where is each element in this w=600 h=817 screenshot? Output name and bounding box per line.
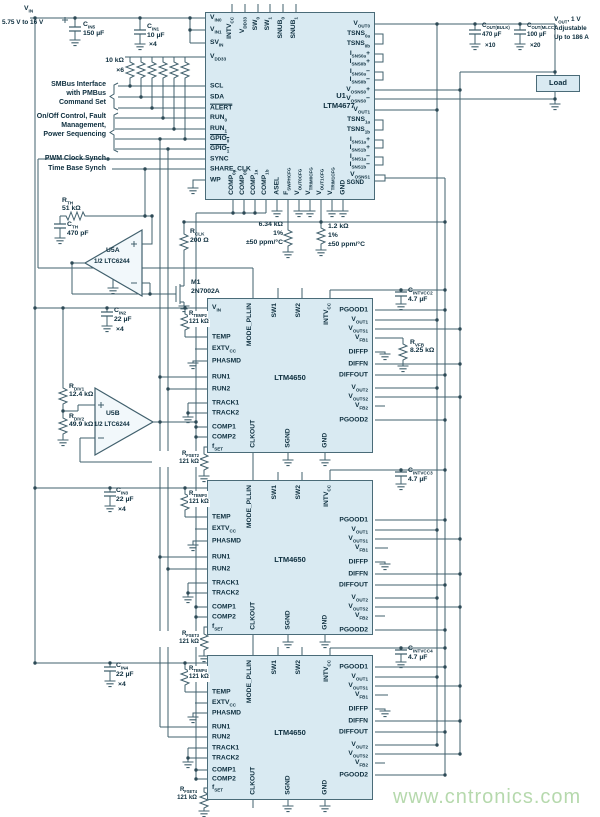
pin-label: RUN2 bbox=[212, 387, 230, 394]
part-number: LTM4650 bbox=[208, 373, 372, 382]
rclk-value: 200 Ω bbox=[190, 237, 209, 245]
control-annotation: Power Sequencing bbox=[0, 131, 106, 138]
pin-label: WP bbox=[210, 178, 221, 185]
pin-label: EXTVCC bbox=[212, 346, 236, 354]
pin-label: CLKOUT bbox=[250, 767, 257, 795]
pin-label: VOUTS2 bbox=[348, 751, 368, 759]
cth-value: 470 pF bbox=[67, 230, 89, 238]
cin5-value: 150 µF bbox=[83, 30, 104, 38]
pin-label: GND bbox=[322, 780, 329, 795]
control-annotation: On/Off Control, Fault bbox=[0, 113, 106, 120]
pin-label: VOUTS2 bbox=[348, 394, 368, 402]
pin-label: ISNS1b+ bbox=[350, 145, 370, 153]
pin-label: VFB2 bbox=[355, 760, 368, 768]
cin3-value: 22 µF bbox=[116, 496, 134, 504]
pin-label: VFB2 bbox=[355, 613, 368, 621]
pin-label: ISNS0b− bbox=[350, 77, 370, 85]
rpull-mult: ×6 bbox=[84, 67, 124, 75]
cin2-value: 22 µF bbox=[114, 316, 132, 324]
pin-label: TRACK1 bbox=[212, 401, 239, 408]
rtemp4-value: 121 kΩ bbox=[188, 674, 210, 682]
pin-label: COMP1 bbox=[212, 605, 236, 612]
cin2-mult: ×4 bbox=[116, 326, 124, 334]
pin-label: TSNS0b bbox=[347, 41, 370, 49]
pin-label: SYNC bbox=[210, 157, 229, 164]
pin-label: SNUB1 bbox=[291, 17, 299, 38]
pin-label: RUN2 bbox=[212, 567, 230, 574]
pin-label: VTRIM1CFG bbox=[328, 167, 336, 195]
rdiv2-value: 49.9 kΩ bbox=[69, 421, 93, 429]
rth-value: 51 kΩ bbox=[62, 205, 81, 213]
pin-label: TEMP bbox=[212, 515, 231, 522]
cin3-mult: ×4 bbox=[118, 506, 126, 514]
pin-label: PHASMD bbox=[212, 539, 241, 546]
u5a-ref: U5A bbox=[106, 247, 120, 255]
pin-label: SW0 bbox=[253, 17, 261, 30]
vin-range: 5.75 V to 16 V bbox=[2, 19, 43, 27]
pwm-annotation: PWM Clock Synch bbox=[0, 155, 106, 162]
pin-label: VDD33 bbox=[240, 17, 248, 33]
pin-label: SGND bbox=[285, 776, 292, 795]
u5a-part: 1/2 LTC6244 bbox=[94, 258, 130, 266]
pin-label: fSET bbox=[212, 785, 223, 793]
pin-label: SW1 bbox=[272, 303, 279, 318]
pin-label: SNUB0 bbox=[278, 17, 286, 38]
cin4-value: 22 µF bbox=[116, 671, 134, 679]
pin-label: VTRIM0CFG bbox=[306, 167, 314, 195]
pin-label: SW1 bbox=[272, 660, 279, 675]
pin-label: VFB1 bbox=[355, 692, 368, 700]
pin-label: COMP1a bbox=[251, 170, 259, 195]
rfset4-value: 121 kΩ bbox=[150, 795, 198, 803]
vout-spec: Adjustable bbox=[554, 25, 587, 33]
pin-label: SW2 bbox=[296, 303, 303, 318]
pin-label: TEMP bbox=[212, 690, 231, 697]
pin-label: TEMP bbox=[212, 335, 231, 342]
pin-label: GND bbox=[340, 180, 347, 195]
coutmlcc-mult: ×20 bbox=[530, 42, 541, 50]
pin-label: VIN1 bbox=[210, 27, 222, 35]
pin-label: VDD33 bbox=[210, 54, 226, 62]
pin-label: COMP2 bbox=[212, 777, 236, 784]
pin-label: ISNS0b+ bbox=[350, 59, 370, 67]
smbus-annotation: Command Set bbox=[0, 99, 106, 106]
cin5-name: CIN5 bbox=[83, 21, 95, 30]
pin-label: VIN0 bbox=[210, 15, 222, 23]
pin-label: VOUT1CFG bbox=[317, 169, 325, 195]
rfset2-name: RFSET2 bbox=[152, 451, 200, 459]
pin-label: SDA bbox=[210, 95, 224, 102]
pin-label: DIFFP bbox=[349, 707, 368, 714]
pin-label: SGND bbox=[285, 429, 292, 448]
cin4-mult: ×4 bbox=[118, 681, 126, 689]
pin-label: DIFFP bbox=[349, 350, 368, 357]
pin-label: COMP2 bbox=[212, 435, 236, 442]
rfset2-value: 121 kΩ bbox=[152, 459, 200, 467]
pin-label: TSNS1a bbox=[347, 117, 370, 125]
pin-label: VIN bbox=[212, 305, 221, 313]
pin-label: SW2 bbox=[296, 485, 303, 500]
pin-label: PGOOD2 bbox=[339, 773, 368, 780]
pin-label: TSNS1b bbox=[347, 127, 370, 135]
vin-label: VIN bbox=[24, 5, 33, 14]
watermark: www.cntronics.com bbox=[393, 786, 581, 809]
cin1-value: 10 µF bbox=[147, 32, 165, 40]
ic-ltm4677: VIN0 VIN1 SVIN VDD33 SCL SDA ALERT RUN0 … bbox=[205, 12, 375, 200]
pin-label: VFB1 bbox=[355, 335, 368, 343]
cintvcc4-value: 4.7 µF bbox=[408, 654, 427, 662]
pin-label: PGOOD2 bbox=[339, 418, 368, 425]
m1-part: 2N7002A bbox=[191, 288, 220, 296]
pin-label: TRACK2 bbox=[212, 756, 239, 763]
pin-label: SW1 bbox=[265, 17, 273, 30]
pin-label: TSNS0a bbox=[347, 31, 370, 39]
pin-label: CLKOUT bbox=[250, 420, 257, 448]
rfset4-name: RFSET4 bbox=[150, 787, 198, 795]
pin-label: VOSNS1 bbox=[350, 172, 370, 180]
pin-label: VOUTS1 bbox=[348, 536, 368, 544]
pin-label: VOUT1 bbox=[351, 674, 368, 682]
timebase-annotation: Time Base Synch bbox=[0, 165, 106, 172]
pin-label: SGND bbox=[347, 180, 364, 186]
control-annotation: Management, bbox=[0, 122, 106, 129]
cintvcc3-value: 4.7 µF bbox=[408, 476, 427, 484]
pin-label: VOUTS1 bbox=[348, 326, 368, 334]
pin-label: SW1 bbox=[272, 485, 279, 500]
coutmlcc-name: COUT(MLCC) bbox=[527, 22, 555, 31]
pin-label: DIFFN bbox=[348, 719, 368, 726]
pin-label: GND bbox=[322, 615, 329, 630]
cth-name: CTH bbox=[67, 221, 78, 230]
cin3-name: CIN3 bbox=[116, 487, 128, 496]
pin-label: COMP1b bbox=[262, 170, 270, 195]
rvfb-value: 8.25 kΩ bbox=[410, 347, 434, 355]
smbus-annotation: with PMBus bbox=[0, 90, 106, 97]
rtemp3-value: 121 kΩ bbox=[188, 499, 210, 507]
pin-label: INTVCC bbox=[324, 660, 332, 682]
ic-ltm4650-3: TEMP EXTVCC PHASMD RUN1 RUN2 TRACK1 TRAC… bbox=[207, 655, 373, 800]
rtemp3-name: RTEMP3 bbox=[188, 491, 208, 499]
pin-label: MODE_PLLIN bbox=[247, 303, 254, 346]
r634-tc: ±50 ppm/°C bbox=[223, 239, 283, 247]
pin-label: EXTVCC bbox=[212, 700, 236, 708]
pin-label: INTVCC bbox=[324, 303, 332, 325]
rpull-value: 10 kΩ bbox=[84, 57, 124, 65]
vout-spec: VOUT, 1 V bbox=[554, 16, 581, 25]
ic-ltm4650-1: VIN TEMP EXTVCC PHASMD RUN1 RUN2 TRACK1 … bbox=[207, 298, 373, 453]
cin2-name: CIN2 bbox=[114, 307, 126, 316]
pin-label: MODE_PLLIN bbox=[247, 485, 254, 528]
pin-label: SVIN bbox=[210, 40, 223, 48]
pin-label: DIFFN bbox=[348, 572, 368, 579]
cintvcc2-name: CINTVCC2 bbox=[408, 287, 433, 296]
pin-label: TRACK2 bbox=[212, 411, 239, 418]
pin-label: ASEL bbox=[274, 177, 281, 195]
pin-label: VOUT1 bbox=[351, 527, 368, 535]
r634-value: 6.34 kΩ bbox=[223, 221, 283, 229]
pin-label: COMP1 bbox=[212, 425, 236, 432]
pin-label: VOUTS1 bbox=[348, 683, 368, 691]
pin-label: INTVCC bbox=[324, 485, 332, 507]
pin-label: MODE_PLLIN bbox=[247, 660, 254, 703]
pin-label: VOUT2 bbox=[351, 595, 368, 603]
coutmlcc-value: 100 µF bbox=[527, 31, 546, 39]
pin-label: INTVCC bbox=[227, 17, 235, 39]
pin-label: DIFFOUT bbox=[339, 583, 368, 590]
pin-label: SGND bbox=[285, 611, 292, 630]
rfset3-value: 121 kΩ bbox=[152, 639, 200, 647]
part-number: LTM4650 bbox=[208, 728, 372, 737]
rtemp2-value: 121 kΩ bbox=[188, 319, 210, 327]
pin-label: FSWPHCFG bbox=[284, 168, 292, 195]
pin-label: fSET bbox=[212, 624, 223, 632]
coutbulk-mult: ×10 bbox=[485, 42, 496, 50]
cin1-mult: ×4 bbox=[149, 41, 157, 49]
pin-label: VOUT2 bbox=[351, 385, 368, 393]
rdiv1-value: 12.4 kΩ bbox=[69, 391, 93, 399]
pin-label: VFB2 bbox=[355, 403, 368, 411]
pin-label: VOUT2 bbox=[351, 742, 368, 750]
pin-label: fSET bbox=[212, 444, 223, 452]
pin-label: VOUT1 bbox=[351, 317, 368, 325]
rtemp2-name: RTEMP2 bbox=[188, 311, 208, 319]
pin-label: CLKOUT bbox=[250, 602, 257, 630]
pin-label: COMP1 bbox=[212, 768, 236, 775]
part-number: LTM4677 bbox=[306, 101, 372, 110]
pin-label: VOUT0 bbox=[353, 21, 370, 29]
pin-label: SCL bbox=[210, 84, 223, 91]
cintvcc4-name: CINTVCC4 bbox=[408, 645, 433, 654]
pin-label: PGOOD2 bbox=[339, 628, 368, 635]
pin-label: RUN0 bbox=[210, 115, 227, 123]
rtemp4-name: RTEMP4 bbox=[188, 666, 208, 674]
vout-spec: Up to 186 A bbox=[554, 34, 589, 42]
cintvcc3-name: CINTVCC3 bbox=[408, 467, 433, 476]
pin-label: VFB1 bbox=[355, 545, 368, 553]
cintvcc2-value: 4.7 µF bbox=[408, 296, 427, 304]
pin-label: GPIO0 bbox=[210, 136, 229, 144]
pin-label: PGOOD1 bbox=[339, 308, 368, 315]
pin-label: TRACK1 bbox=[212, 746, 239, 753]
pin-label: COMP0a bbox=[229, 170, 237, 195]
pin-label: PHASMD bbox=[212, 359, 241, 366]
r12-tol: 1% bbox=[328, 232, 338, 240]
pin-label: VOUTS2 bbox=[348, 604, 368, 612]
pin-label: VOUT0CFG bbox=[295, 169, 303, 195]
cin4-name: CIN4 bbox=[116, 662, 128, 671]
u5b-ref: U5B bbox=[106, 410, 120, 418]
pin-label: DIFFN bbox=[348, 362, 368, 369]
schematic: VIN0 VIN1 SVIN VDD33 SCL SDA ALERT RUN0 … bbox=[0, 0, 600, 817]
load-box: Load bbox=[536, 75, 580, 92]
coutbulk-name: COUT(BULK) bbox=[482, 22, 510, 31]
part-number: LTM4650 bbox=[208, 555, 372, 564]
cin1-name: CIN1 bbox=[147, 23, 159, 32]
pin-label: GPIO1 bbox=[210, 146, 229, 154]
pin-label: GND bbox=[322, 433, 329, 448]
rfset3-name: RFSET3 bbox=[152, 631, 200, 639]
pin-label: COMP2 bbox=[212, 615, 236, 622]
m1-ref: M1 bbox=[191, 279, 200, 287]
pin-label: EXTVCC bbox=[212, 526, 236, 534]
pin-label: PHASMD bbox=[212, 711, 241, 718]
r12-value: 1.2 kΩ bbox=[328, 223, 349, 231]
coutbulk-value: 470 µF bbox=[482, 31, 501, 39]
pin-label: SW2 bbox=[296, 660, 303, 675]
pin-label: PGOOD1 bbox=[339, 665, 368, 672]
pin-label: ALERT bbox=[210, 106, 232, 113]
pin-label: COMP0b bbox=[240, 170, 248, 195]
refdes: U1 bbox=[311, 91, 371, 100]
smbus-annotation: SMBus Interface bbox=[0, 81, 106, 88]
r12-tc: ±50 ppm/°C bbox=[328, 241, 365, 249]
pin-label: RUN1 bbox=[210, 126, 227, 134]
pin-label: ISNS1b− bbox=[350, 162, 370, 170]
rclk-name: RCLK bbox=[190, 228, 204, 237]
pin-label: PGOOD1 bbox=[339, 518, 368, 525]
pin-label: TRACK1 bbox=[212, 581, 239, 588]
u5b-part: 1/2 LTC6244 bbox=[94, 421, 130, 429]
r634-tol: 1% bbox=[223, 230, 283, 238]
pin-label: TRACK2 bbox=[212, 591, 239, 598]
ic-ltm4650-2: TEMP EXTVCC PHASMD RUN1 RUN2 TRACK1 TRAC… bbox=[207, 480, 373, 635]
